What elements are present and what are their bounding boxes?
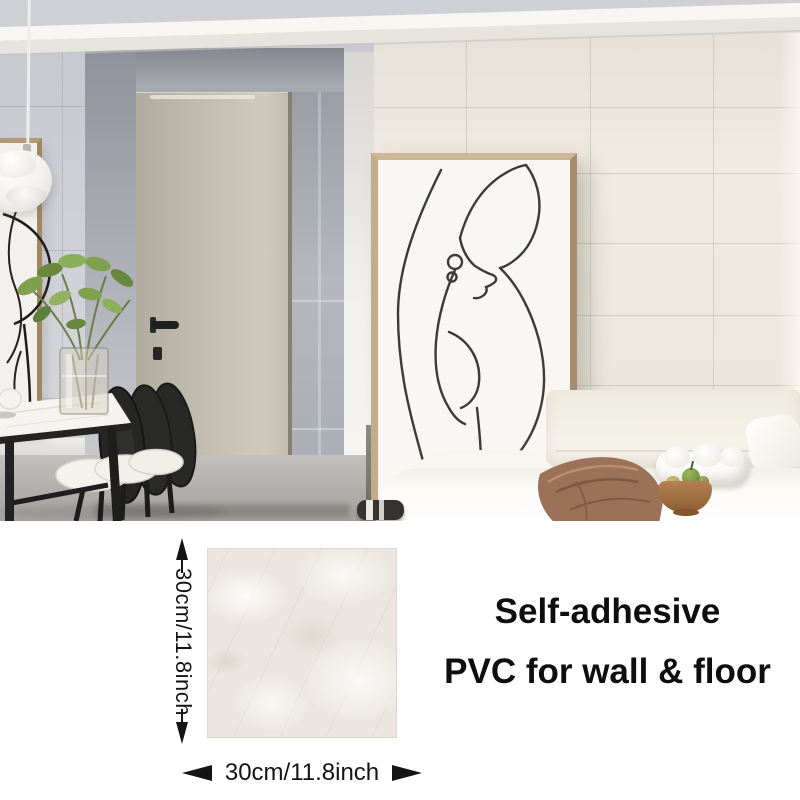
dimension-arrow-down [176, 722, 188, 744]
glass-seam [292, 300, 344, 302]
crown-molding [0, 0, 800, 60]
annotation-area: 30cm/11.8inch 30cm/11.8inch Self-adhesiv… [0, 521, 800, 800]
glass-seam [292, 428, 344, 430]
striped-speaker [357, 500, 404, 520]
caption-line-2: PVC for wall & floor [415, 654, 800, 689]
throw-blanket [526, 452, 668, 521]
caption-line-1: Self-adhesive [415, 594, 800, 629]
room-scene-photo [0, 0, 800, 521]
potted-plant [2, 248, 168, 420]
product-caption: Self-adhesive PVC for wall & floor [415, 594, 800, 689]
dimension-arrow-right [392, 765, 422, 781]
tile-sample-swatch [207, 548, 397, 738]
grout-line [0, 106, 85, 107]
vertical-dimension-label: 30cm/11.8inch [170, 568, 196, 716]
grout-line [374, 107, 800, 108]
speaker-stripe [366, 500, 373, 520]
throw-pillow [744, 412, 800, 475]
pendant-lamp-petal [6, 186, 46, 206]
pillow-fold [720, 447, 744, 467]
dimension-arrow-left [182, 765, 212, 781]
glass-vase [60, 348, 108, 414]
speaker-stripe [379, 500, 384, 520]
horizontal-dimension: 30cm/11.8inch [191, 757, 413, 789]
horizontal-dimension-label: 30cm/11.8inch [222, 759, 382, 787]
product-showcase-image: { "caption": { "line1": "Self-adhesive",… [0, 0, 800, 800]
dimension-line [181, 709, 183, 723]
bowl-base [673, 509, 699, 516]
dimension-arrow-up [176, 538, 188, 560]
door-top-highlight [150, 95, 255, 99]
wall-corner-highlight [779, 33, 800, 433]
pillow-fold [692, 443, 722, 467]
